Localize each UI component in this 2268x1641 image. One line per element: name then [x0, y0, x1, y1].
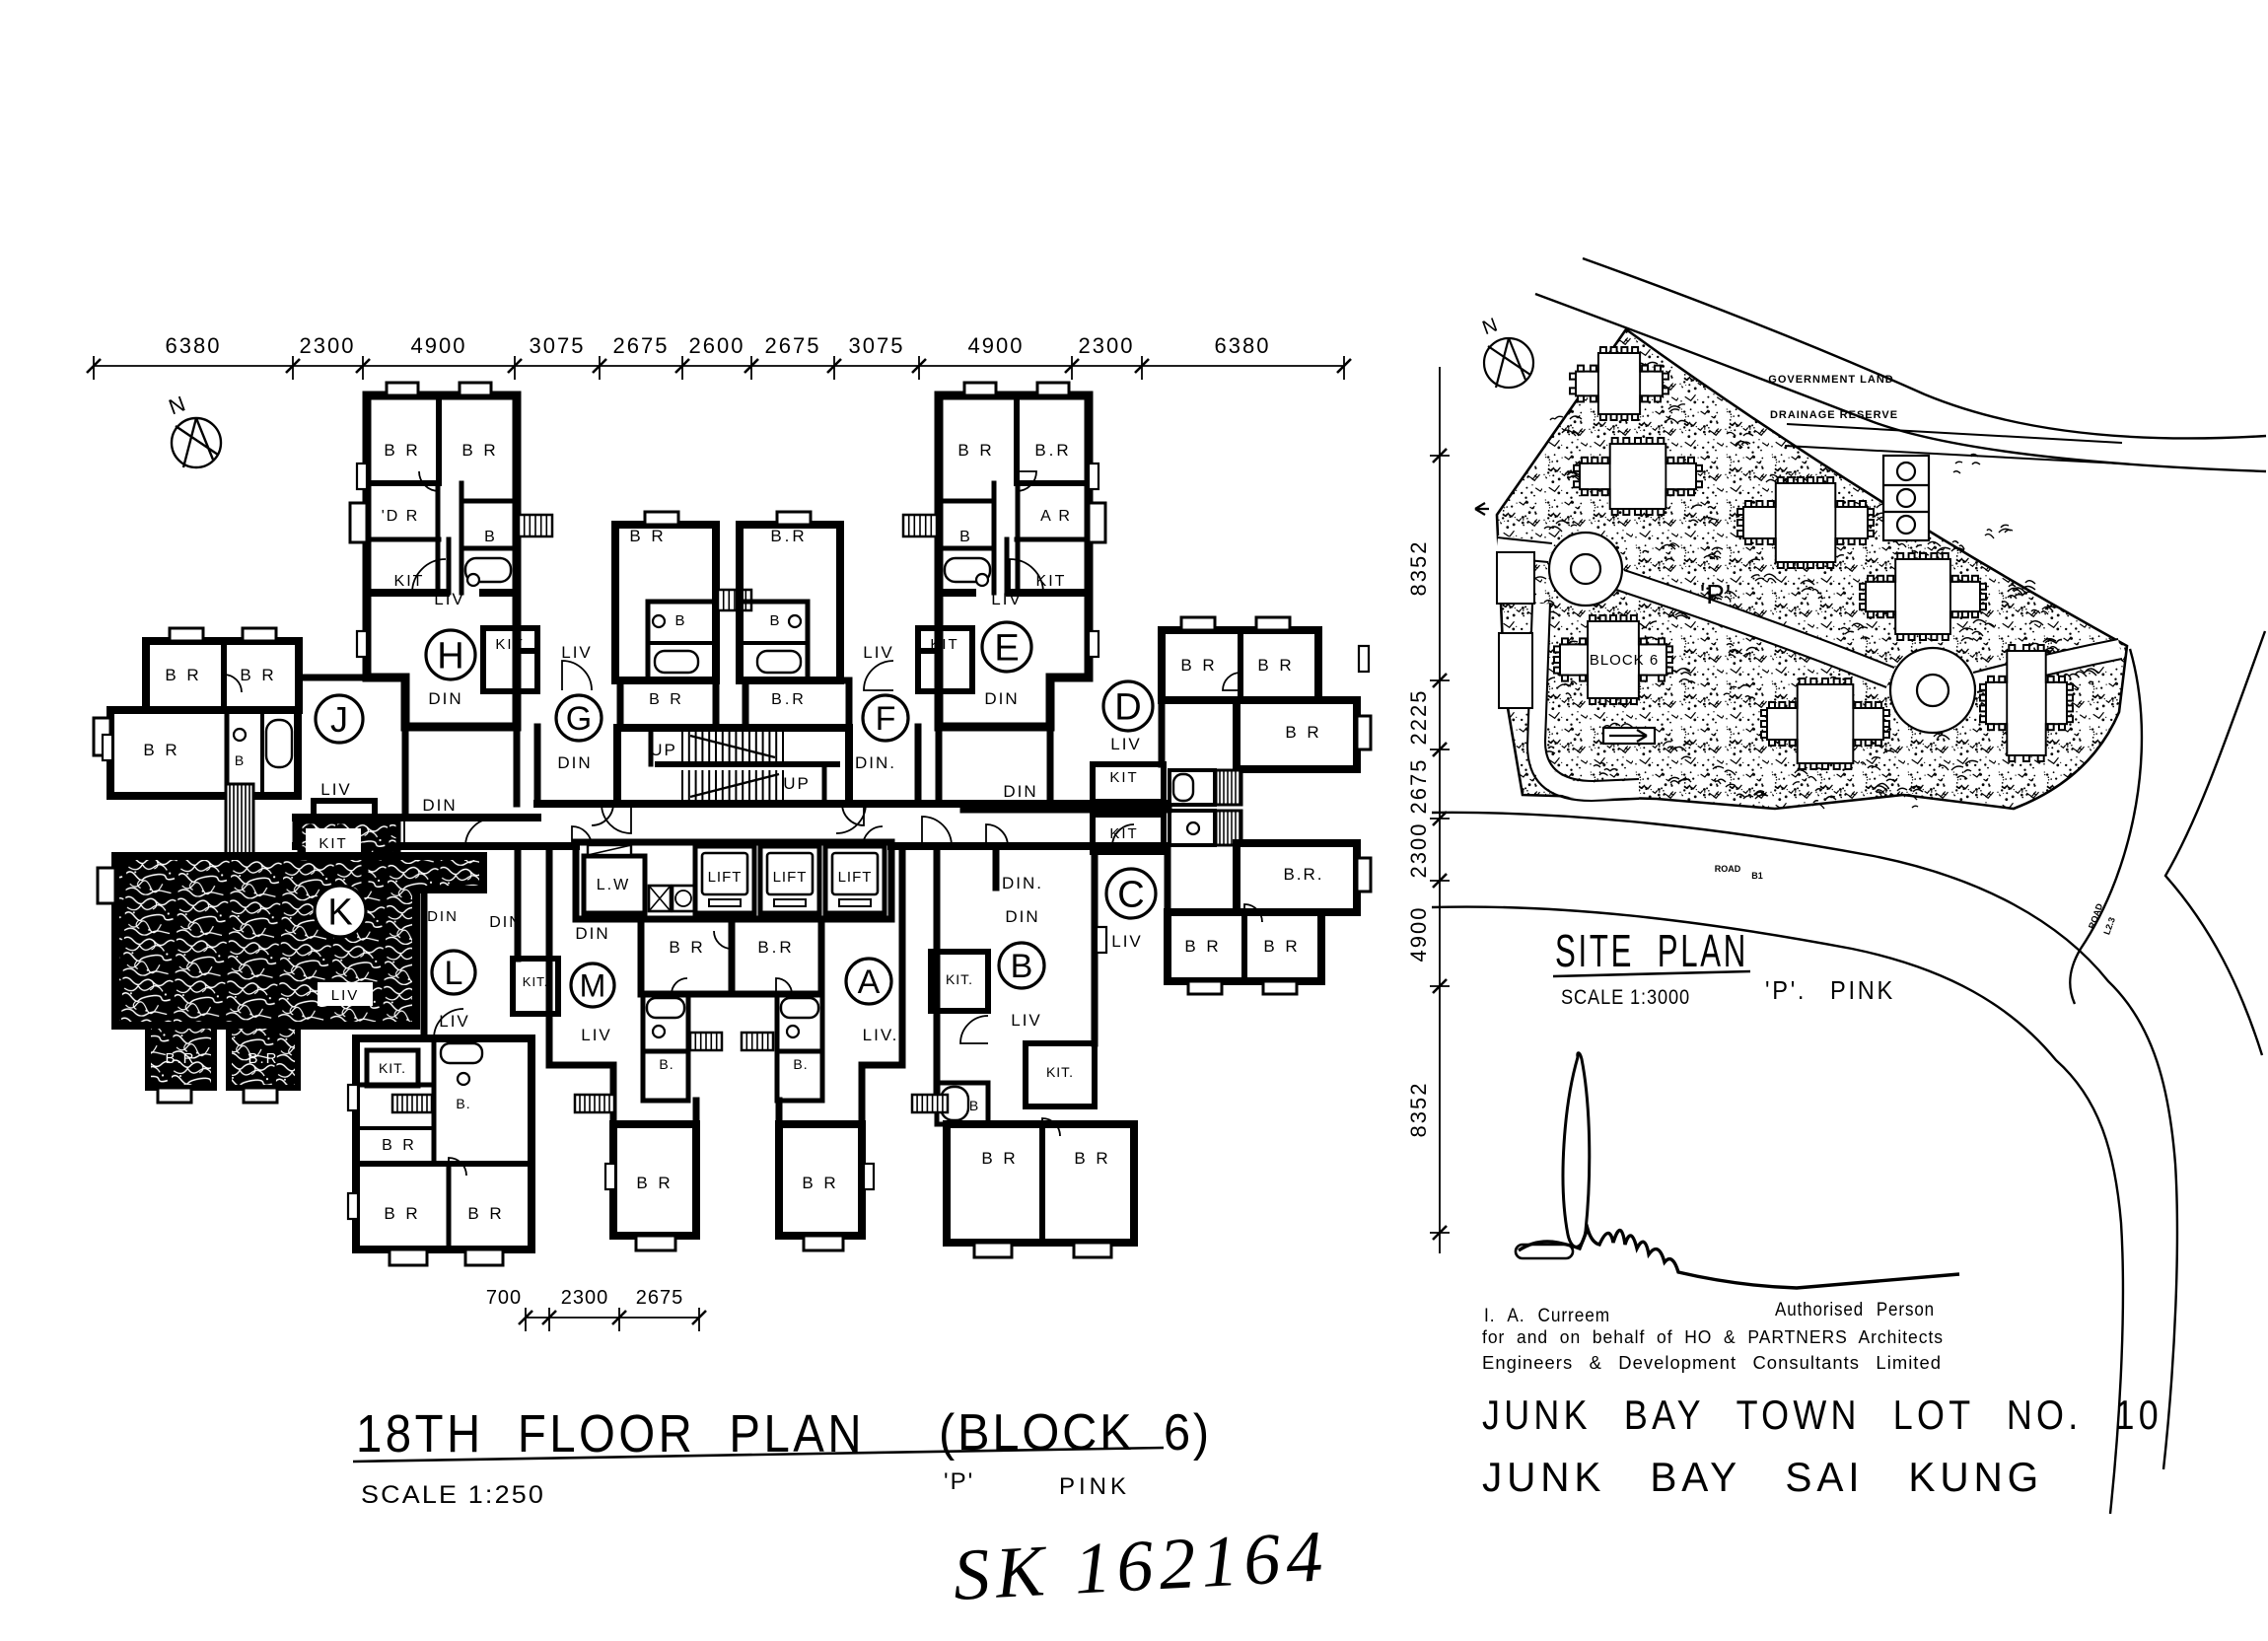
- svg-text:DIN: DIN: [575, 924, 609, 943]
- svg-text:2675: 2675: [765, 333, 821, 358]
- svg-text:2600: 2600: [689, 333, 745, 358]
- svg-text:B1: B1: [1751, 871, 1763, 881]
- svg-text:DIN: DIN: [428, 689, 462, 708]
- svg-text:DIN: DIN: [427, 908, 459, 925]
- svg-text:KIT.: KIT.: [523, 974, 548, 989]
- svg-text:B R: B R: [384, 1204, 420, 1223]
- svg-text:DIN: DIN: [557, 753, 592, 772]
- svg-text:KIT.: KIT.: [946, 971, 973, 987]
- svg-text:B.R: B.R: [771, 691, 807, 708]
- svg-text:B.R: B.R: [757, 938, 794, 957]
- svg-text:G: G: [566, 700, 592, 738]
- svg-text:B R: B R: [636, 1174, 673, 1192]
- svg-text:PINK: PINK: [1059, 1473, 1130, 1500]
- svg-text:B R: B R: [384, 441, 420, 460]
- svg-text:B R: B R: [1257, 656, 1294, 675]
- svg-text:LIV: LIV: [561, 643, 593, 662]
- svg-text:B R: B R: [981, 1149, 1018, 1168]
- svg-text:UP: UP: [650, 741, 677, 759]
- svg-text:C: C: [1117, 875, 1144, 916]
- svg-text:LIV: LIV: [1111, 932, 1143, 951]
- svg-text:6380: 6380: [1215, 333, 1271, 358]
- svg-text:B R: B R: [467, 1204, 504, 1223]
- svg-text:Engineers & Development Consul: Engineers & Development Consultants Limi…: [1482, 1353, 1942, 1373]
- svg-text:B: B: [484, 529, 496, 545]
- svg-text:4900: 4900: [411, 333, 467, 358]
- svg-text:3075: 3075: [530, 333, 586, 358]
- svg-text:B R: B R: [143, 741, 179, 759]
- svg-text:A R: A R: [1040, 508, 1072, 525]
- svg-text:GOVERNMENT LAND: GOVERNMENT LAND: [1768, 374, 1893, 386]
- svg-text:3075: 3075: [849, 333, 905, 358]
- svg-text:LIV: LIV: [1110, 735, 1142, 753]
- svg-text:JUNK BAY TOWN LOT NO. 10: JUNK BAY TOWN LOT NO. 10: [1482, 1391, 2162, 1438]
- svg-text:UP: UP: [783, 774, 811, 793]
- svg-text:LIV: LIV: [439, 1012, 470, 1031]
- svg-text:LIV: LIV: [863, 643, 894, 662]
- svg-text:B R: B R: [1285, 723, 1321, 742]
- svg-text:DIN: DIN: [984, 689, 1019, 708]
- svg-text:700: 700: [486, 1287, 522, 1309]
- svg-text:Authorised Person: Authorised Person: [1775, 1300, 1935, 1320]
- svg-text:K: K: [327, 892, 352, 934]
- svg-text:LIFT: LIFT: [708, 869, 743, 886]
- svg-text:B R: B R: [1184, 937, 1221, 956]
- svg-text:KIT: KIT: [1109, 769, 1138, 786]
- svg-text:B R: B R: [649, 691, 684, 708]
- svg-text:B R: B R: [669, 938, 705, 957]
- svg-text:LIV: LIV: [331, 987, 360, 1004]
- svg-text:2300: 2300: [300, 333, 356, 358]
- svg-text:4900: 4900: [1406, 906, 1431, 963]
- svg-text:'P'. PINK: 'P'. PINK: [1765, 975, 1895, 1005]
- svg-text:DIN.: DIN.: [855, 753, 896, 772]
- svg-text:B.R: B.R: [1034, 441, 1071, 460]
- svg-text:for and on behalf of HO & PART: for and on behalf of HO & PARTNERS Archi…: [1482, 1327, 1944, 1347]
- svg-text:B R: B R: [957, 441, 994, 460]
- svg-text:KIT: KIT: [1036, 573, 1067, 590]
- svg-text:KIT.: KIT.: [1046, 1064, 1074, 1080]
- svg-text:I. A. Curreem: I. A. Curreem: [1484, 1306, 1610, 1326]
- svg-text:B: B: [674, 612, 685, 629]
- svg-text:B.: B.: [456, 1096, 470, 1111]
- svg-text:B R: B R: [1263, 937, 1300, 956]
- svg-text:LIFT: LIFT: [838, 869, 873, 886]
- svg-text:B.R: B.R: [248, 1050, 278, 1067]
- svg-text:B R: B R: [165, 666, 201, 684]
- svg-text:J: J: [330, 699, 348, 740]
- svg-text:DIN: DIN: [422, 796, 457, 815]
- svg-text:KIT: KIT: [394, 573, 425, 590]
- svg-text:2300: 2300: [1406, 822, 1431, 879]
- svg-text:D: D: [1114, 687, 1141, 729]
- svg-text:B R: B R: [461, 441, 498, 460]
- svg-text:B.: B.: [793, 1056, 808, 1072]
- svg-text:L: L: [445, 955, 463, 992]
- svg-text:F: F: [876, 700, 896, 738]
- svg-text:8352: 8352: [1406, 540, 1431, 597]
- svg-text:H: H: [437, 636, 463, 678]
- svg-text:B R: B R: [1180, 656, 1217, 675]
- svg-text:'P': 'P': [944, 1468, 974, 1495]
- svg-text:LIV: LIV: [434, 590, 465, 608]
- svg-text:DIN.: DIN.: [1002, 874, 1043, 892]
- svg-text:2225: 2225: [1406, 689, 1431, 746]
- svg-text:JUNK BAY SAI KUNG: JUNK BAY SAI KUNG: [1482, 1454, 2043, 1500]
- svg-text:LIV.: LIV.: [863, 1026, 899, 1044]
- svg-text:4900: 4900: [968, 333, 1025, 358]
- svg-text:2675: 2675: [636, 1287, 684, 1309]
- svg-text:SCALE 1:250: SCALE 1:250: [361, 1481, 545, 1509]
- svg-text:2675: 2675: [613, 333, 670, 358]
- svg-text:8352: 8352: [1406, 1082, 1431, 1138]
- svg-text:B: B: [969, 1098, 979, 1113]
- svg-text:B.R: B.R: [770, 527, 807, 545]
- svg-text:A: A: [858, 963, 881, 1001]
- svg-text:LIV: LIV: [320, 780, 352, 799]
- svg-text:'P': 'P': [1700, 579, 1732, 609]
- svg-text:B.R.: B.R.: [1283, 865, 1323, 884]
- svg-text:E: E: [994, 628, 1019, 670]
- svg-text:B R: B R: [382, 1137, 417, 1154]
- svg-text:B R: B R: [240, 666, 276, 684]
- svg-text:SCALE 1:3000: SCALE 1:3000: [1561, 986, 1690, 1009]
- svg-text:B.: B.: [659, 1056, 673, 1072]
- svg-text:2300: 2300: [1079, 333, 1135, 358]
- svg-text:'D R: 'D R: [382, 508, 420, 525]
- svg-text:B R: B R: [629, 527, 666, 545]
- svg-text:2300: 2300: [561, 1287, 609, 1309]
- svg-text:LIV: LIV: [581, 1026, 612, 1044]
- svg-text:DRAINAGE RESERVE: DRAINAGE RESERVE: [1770, 409, 1898, 421]
- svg-text:L.W: L.W: [597, 877, 630, 893]
- svg-text:2675: 2675: [1406, 758, 1431, 815]
- svg-text:B.R: B.R: [165, 1050, 195, 1067]
- svg-text:DIN: DIN: [1003, 782, 1037, 801]
- svg-text:LIV: LIV: [991, 590, 1023, 608]
- svg-text:DIN: DIN: [1005, 907, 1039, 926]
- svg-text:B: B: [235, 752, 245, 768]
- svg-text:(BLOCK 6): (BLOCK 6): [939, 1404, 1212, 1462]
- svg-text:B R: B R: [802, 1174, 838, 1192]
- svg-text:B: B: [769, 612, 780, 629]
- svg-text:SITE PLAN: SITE PLAN: [1555, 925, 1748, 976]
- svg-text:M: M: [580, 968, 606, 1004]
- svg-text:B: B: [1011, 948, 1033, 985]
- svg-text:BLOCK 6: BLOCK 6: [1590, 652, 1659, 669]
- svg-text:ROAD: ROAD: [1715, 864, 1741, 874]
- svg-text:KIT: KIT: [319, 835, 347, 852]
- svg-text:B: B: [959, 529, 971, 545]
- svg-text:LIFT: LIFT: [773, 869, 808, 886]
- svg-text:B R: B R: [1074, 1149, 1110, 1168]
- svg-text:6380: 6380: [166, 333, 222, 358]
- svg-text:KIT.: KIT.: [379, 1060, 406, 1076]
- svg-text:LIV: LIV: [1011, 1011, 1042, 1030]
